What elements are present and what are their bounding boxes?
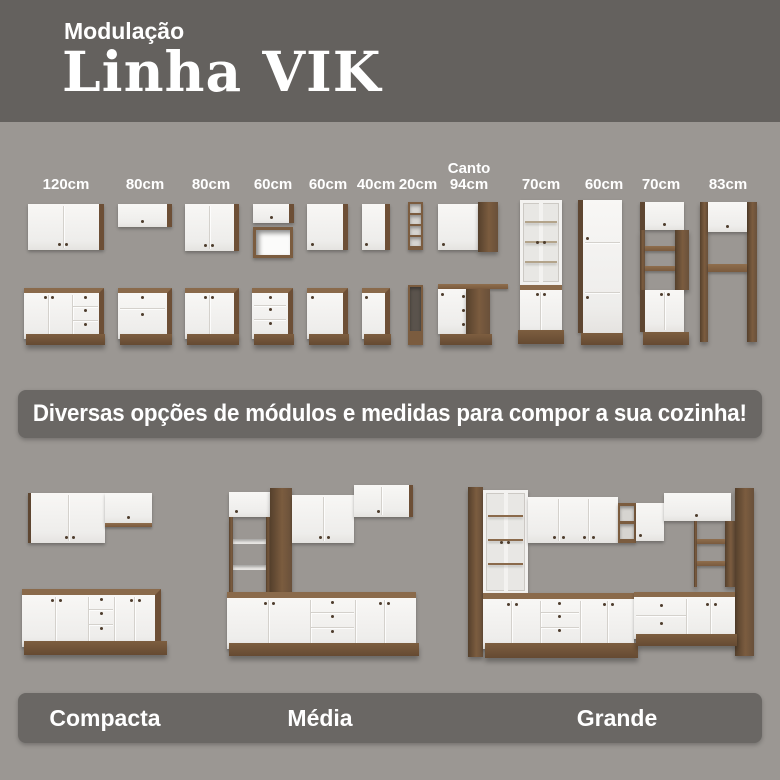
module-label-80cm-a: 80cm — [110, 177, 180, 193]
handle — [507, 603, 510, 606]
handle — [100, 598, 103, 601]
handle — [141, 296, 144, 299]
door-divider — [209, 206, 210, 249]
handle — [211, 296, 214, 299]
module-80cm-base-cabinet — [118, 288, 172, 339]
handle — [695, 514, 698, 517]
plinth — [26, 334, 105, 345]
module-canto-wall-wood-panel — [478, 202, 498, 252]
handle — [72, 536, 75, 539]
handle — [269, 322, 272, 325]
handle — [500, 541, 503, 544]
door-split — [585, 242, 620, 243]
module-60cm-tall-pantry — [578, 200, 622, 333]
handle — [100, 612, 103, 615]
banner-text: Diversas opções de módulos e medidas par… — [33, 401, 747, 427]
handle — [442, 243, 445, 246]
handle — [100, 627, 103, 630]
plinth — [581, 333, 623, 345]
handle — [441, 293, 444, 296]
plinth — [187, 334, 239, 345]
module-70cm-glass-hutch — [520, 200, 562, 285]
wood-side-panel — [270, 488, 292, 592]
module-80cm-tall-wall-cabinet — [185, 204, 239, 251]
module-canto-wall-door — [438, 204, 478, 250]
handle — [583, 536, 586, 539]
door-divider — [323, 497, 324, 541]
handle — [138, 599, 141, 602]
handle — [59, 599, 62, 602]
module-60cm-drawer-base — [252, 288, 293, 339]
plinth — [24, 641, 167, 655]
handle — [365, 296, 368, 299]
wood-upright — [700, 202, 708, 342]
drawer-line — [541, 627, 579, 628]
door-divider — [664, 292, 665, 330]
door-divider — [72, 295, 73, 337]
grande-wall-run — [528, 497, 618, 543]
handle — [515, 603, 518, 606]
door-divider — [63, 206, 64, 248]
handle — [543, 241, 546, 244]
media-wall-cabinet-high — [354, 485, 413, 517]
door-divider — [558, 499, 559, 541]
door-divider — [114, 597, 115, 645]
module-60cm-wall-cabinet — [307, 204, 348, 250]
handle — [204, 296, 207, 299]
handle — [558, 602, 561, 605]
module-label-83cm: 83cm — [693, 177, 763, 193]
handle — [331, 630, 334, 633]
module-20cm-base-tower — [408, 285, 423, 345]
module-40cm-wall-cabinet — [362, 204, 390, 250]
drawer-line — [254, 319, 286, 320]
handle — [211, 244, 214, 247]
shelf-cubby — [410, 226, 421, 235]
wood-upright — [640, 230, 645, 290]
door-divider — [209, 295, 210, 337]
glass-shelf — [488, 563, 523, 565]
wood-side-panel — [675, 230, 689, 290]
plinth — [229, 643, 419, 656]
module-label-20cm: 20cm — [383, 177, 453, 193]
glass-shelf — [525, 241, 557, 243]
handle — [264, 602, 267, 605]
drawer-line — [541, 612, 579, 613]
open-interior — [410, 287, 421, 331]
handle — [660, 293, 663, 296]
shelf-cubby — [410, 215, 421, 224]
module-label-120cm: 120cm — [31, 177, 101, 193]
kitchen-label-compacta: Compacta — [49, 693, 160, 743]
drawer-line — [73, 306, 98, 307]
fridge-top-cabinet — [708, 202, 747, 232]
media-tower-top-door — [229, 492, 270, 517]
drawer-line — [73, 320, 98, 321]
plinth — [643, 332, 689, 345]
door-divider — [55, 597, 56, 645]
handle — [84, 323, 87, 326]
shelf-cubby — [620, 506, 634, 521]
handle — [387, 602, 390, 605]
plinth — [120, 334, 172, 345]
door-divider — [540, 292, 541, 333]
handle — [270, 216, 273, 219]
handle — [592, 536, 595, 539]
hinge — [462, 309, 465, 312]
handle — [586, 237, 589, 240]
handle — [331, 615, 334, 618]
module-label-canto-94cm: Canto 94cm — [445, 161, 493, 193]
handle — [660, 604, 663, 607]
plinth — [518, 330, 564, 344]
page-title: Linha VIK — [62, 42, 382, 102]
door-divider — [68, 495, 69, 541]
handle — [543, 293, 546, 296]
handle — [327, 536, 330, 539]
media-wall-cabinet — [292, 495, 354, 543]
module-83cm-fridge-surround — [700, 202, 757, 342]
handle — [141, 220, 144, 223]
plinth — [636, 634, 737, 646]
handle — [272, 602, 275, 605]
module-120cm-base-cabinet — [24, 288, 104, 339]
module-70cm-tower-base — [640, 290, 684, 332]
door-divider — [88, 597, 89, 645]
door-divider — [540, 601, 541, 647]
handle — [204, 244, 207, 247]
drawer-line — [254, 305, 286, 306]
module-label-80cm-b: 80cm — [176, 177, 246, 193]
wood-shelf — [697, 561, 725, 566]
handle — [586, 296, 589, 299]
module-80cm-wall-cabinet — [118, 204, 172, 227]
grande-wall-cabinet-right — [636, 503, 664, 541]
door-divider — [310, 600, 311, 647]
handle — [84, 296, 87, 299]
shelf — [233, 539, 266, 544]
handle — [65, 536, 68, 539]
glass-shelf — [525, 261, 557, 263]
plinth — [440, 334, 492, 345]
wood-side-panel — [735, 488, 754, 656]
shelf-cubby — [620, 524, 634, 539]
drawer-line — [89, 609, 113, 610]
handle — [507, 541, 510, 544]
door-divider — [588, 499, 589, 541]
handle — [714, 603, 717, 606]
size-options-bar: Compacta Média Grande — [18, 693, 762, 743]
module-canto-base-door — [438, 289, 466, 334]
drawer-line — [89, 624, 113, 625]
handle — [51, 599, 54, 602]
handle — [84, 309, 87, 312]
module-60cm-flap-wall-cabinet — [253, 204, 294, 223]
handle — [65, 243, 68, 246]
wood-upright — [229, 517, 233, 592]
handle — [130, 599, 133, 602]
handle — [553, 536, 556, 539]
modules-strip: 120cm 80cm 80cm 60cm 60cm 40cm 20cm Cant… — [0, 122, 780, 382]
handle — [558, 615, 561, 618]
wood-side-panel — [468, 487, 483, 657]
grande-fridge-top-cabinet — [664, 493, 731, 521]
door-divider — [134, 597, 135, 645]
plinth — [309, 334, 349, 345]
handle — [611, 603, 614, 606]
handle — [663, 223, 666, 226]
handle — [311, 243, 314, 246]
kitchen-compacta — [20, 486, 210, 666]
handle — [726, 225, 729, 228]
grande-open-tower — [694, 521, 735, 587]
handle — [706, 603, 709, 606]
module-120cm-wall-cabinet — [28, 204, 104, 250]
module-60cm-base-cabinet — [307, 288, 348, 339]
door-divider — [511, 601, 512, 647]
module-60cm-open-niche — [253, 227, 293, 258]
module-20cm-wall-shelf — [408, 202, 423, 250]
handle — [141, 313, 144, 316]
handle — [269, 308, 272, 311]
compacta-base-run — [22, 589, 161, 647]
grande-base-run-right — [634, 592, 735, 639]
handle — [235, 510, 238, 513]
handle — [660, 622, 663, 625]
compacta-wall-cabinet — [28, 493, 105, 543]
door-divider — [686, 599, 687, 637]
door-divider — [710, 599, 711, 637]
handle — [127, 516, 130, 519]
drawer-line — [120, 308, 165, 309]
module-label-70cm-b: 70cm — [626, 177, 696, 193]
shelf — [233, 565, 266, 570]
drawer-line — [311, 612, 354, 613]
handle — [44, 296, 47, 299]
module-70cm-hutch-base — [520, 285, 562, 335]
module-80cm-two-door-base — [185, 288, 239, 339]
door-divider — [268, 600, 269, 647]
shelf-cubby — [410, 237, 421, 246]
wood-side-panel — [725, 521, 735, 587]
plinth — [254, 334, 294, 345]
kitchen-label-media: Média — [287, 693, 352, 743]
module-70cm-tower-open-section — [640, 230, 689, 290]
handle — [377, 510, 380, 513]
banner: Diversas opções de módulos e medidas par… — [18, 390, 762, 438]
wood-shelf — [697, 539, 725, 544]
wood-shelf — [645, 246, 675, 251]
handle — [331, 601, 334, 604]
door-divider — [355, 600, 356, 647]
wood-upright — [747, 202, 757, 342]
glass-shelf — [525, 221, 557, 223]
wood-underside — [105, 523, 152, 527]
drawer-line — [636, 615, 686, 616]
door-divider — [48, 295, 49, 337]
handle — [536, 241, 539, 244]
handle — [667, 293, 670, 296]
wood-shelf — [708, 264, 747, 272]
hinge — [462, 323, 465, 326]
plinth — [485, 643, 638, 658]
hinge — [462, 295, 465, 298]
handle — [311, 296, 314, 299]
media-base-run — [227, 592, 416, 649]
handle — [379, 602, 382, 605]
door-divider — [607, 601, 608, 647]
kitchen-label-grande: Grande — [577, 693, 658, 743]
grande-glass-tower — [483, 490, 528, 594]
door-divider — [384, 600, 385, 647]
page: Modulação Linha VIK 120cm 80cm 80cm 60cm… — [0, 0, 780, 780]
drawer-line — [311, 627, 354, 628]
handle — [558, 629, 561, 632]
module-label-70cm-a: 70cm — [506, 177, 576, 193]
glass-shelf — [488, 515, 523, 517]
module-canto-base-wood-panel — [466, 289, 490, 334]
grande-corner-shelves — [618, 503, 636, 543]
grande-base-run-left — [483, 593, 634, 649]
plinth — [364, 334, 391, 345]
glass-shelf — [488, 539, 523, 541]
module-70cm-tower-top-door — [640, 202, 684, 230]
handle — [639, 534, 642, 537]
wood-shelf — [645, 266, 675, 271]
module-40cm-base-cabinet — [362, 288, 390, 339]
kitchen-grande — [462, 476, 762, 661]
media-tower-open-shelves — [229, 517, 270, 592]
door-divider — [580, 601, 581, 647]
shelf-cubby — [410, 204, 421, 213]
handle — [536, 293, 539, 296]
handle — [319, 536, 322, 539]
handle — [51, 296, 54, 299]
door-split — [585, 292, 620, 293]
handle — [269, 296, 272, 299]
handle — [58, 243, 61, 246]
header: Modulação Linha VIK — [0, 0, 780, 122]
door-divider — [381, 487, 382, 515]
handle — [365, 243, 368, 246]
compacta-wall-flap-cabinet — [105, 493, 152, 523]
handle — [562, 536, 565, 539]
wood-upright — [694, 521, 697, 587]
kitchen-media — [227, 476, 419, 658]
handle — [603, 603, 606, 606]
